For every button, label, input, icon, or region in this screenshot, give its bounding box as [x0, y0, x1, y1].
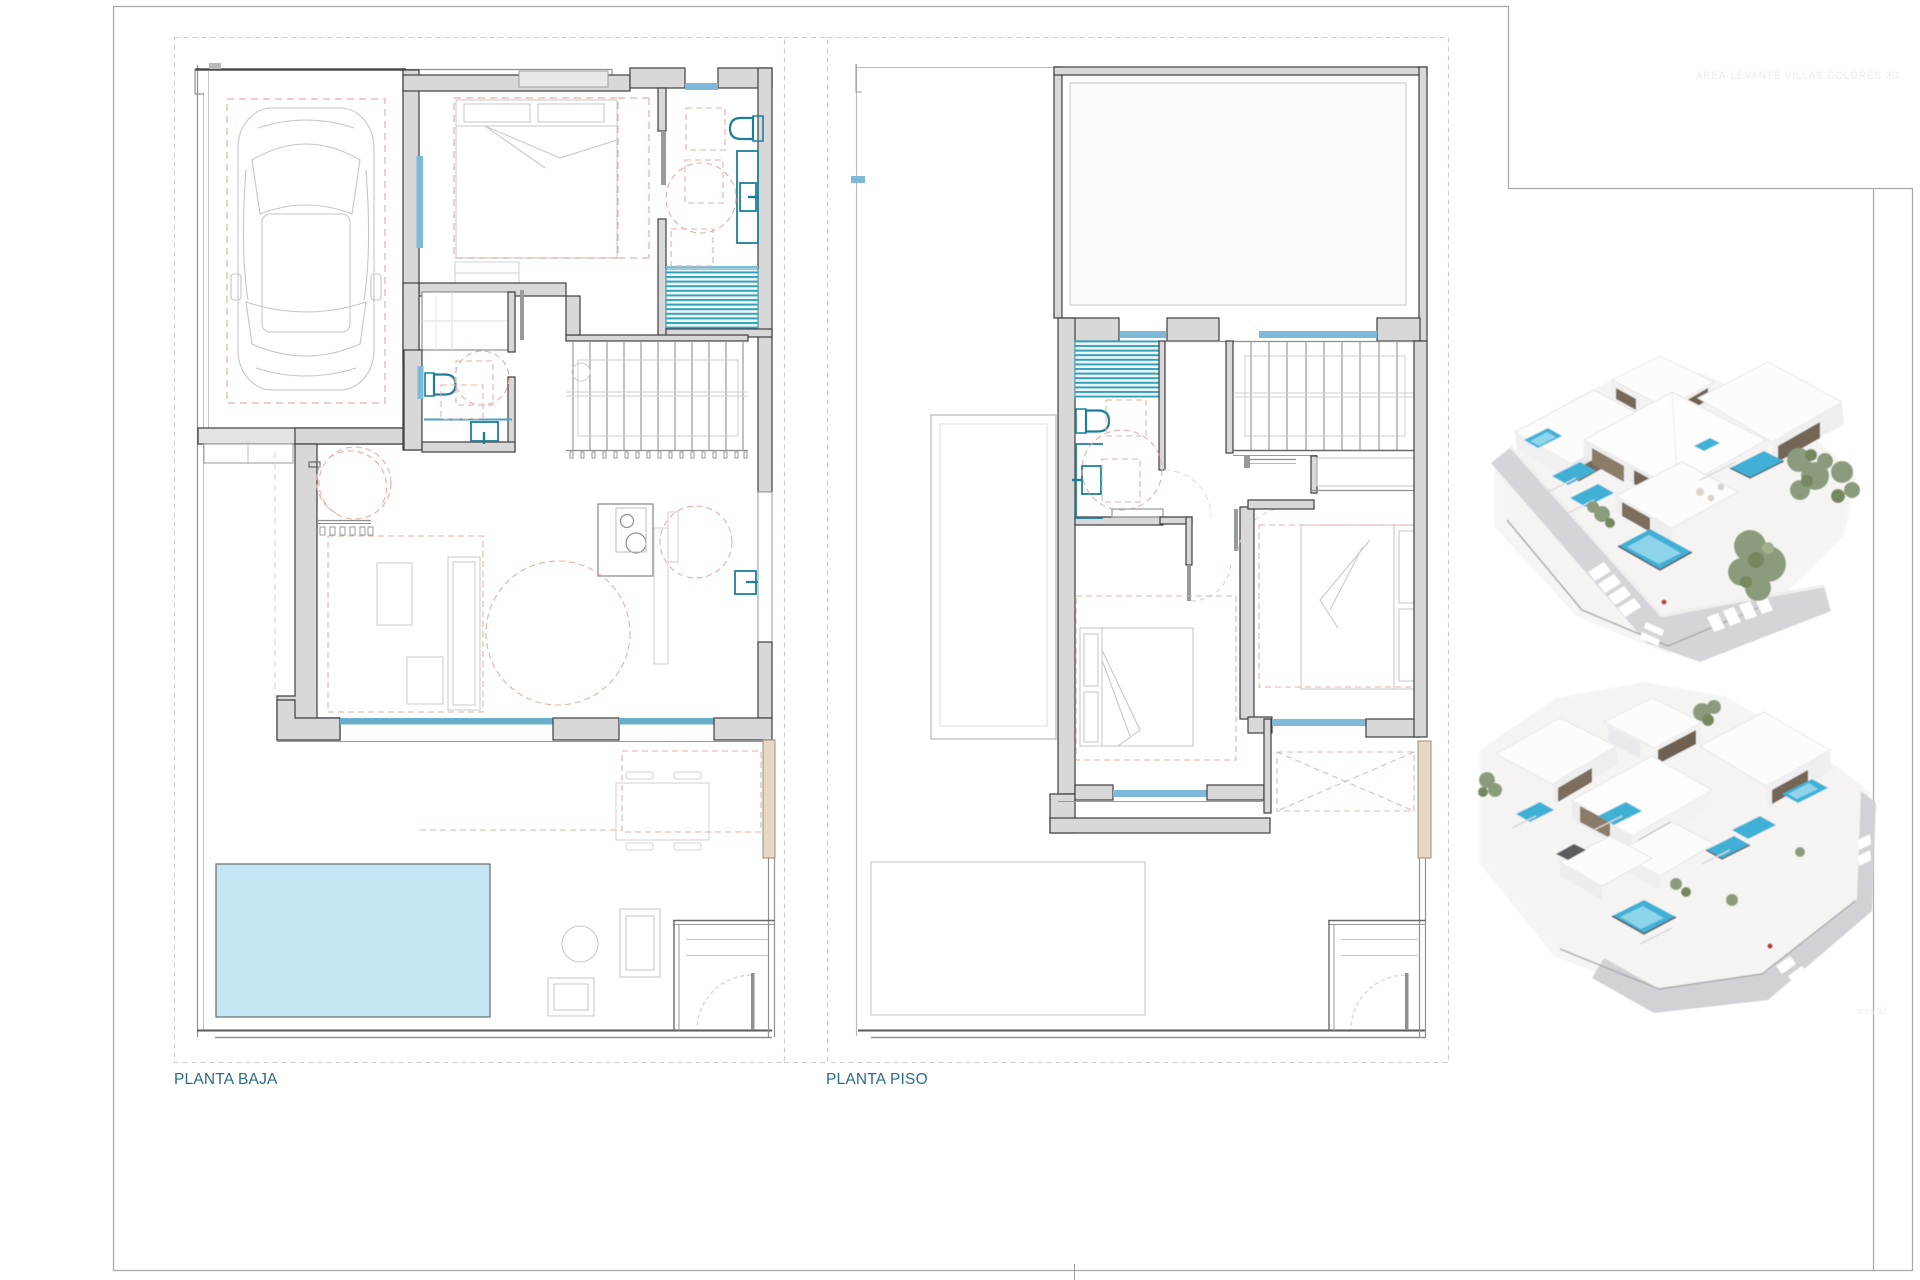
svg-text:area·3d: area·3d [1856, 1006, 1887, 1016]
svg-text:PLANTA PISO: PLANTA PISO [826, 1071, 928, 1088]
svg-text:PLANTA BAJA: PLANTA BAJA [174, 1071, 278, 1088]
svg-text:AREA·LEVANTE VILLAS DOLORES 3D: AREA·LEVANTE VILLAS DOLORES 3D [1696, 70, 1900, 82]
